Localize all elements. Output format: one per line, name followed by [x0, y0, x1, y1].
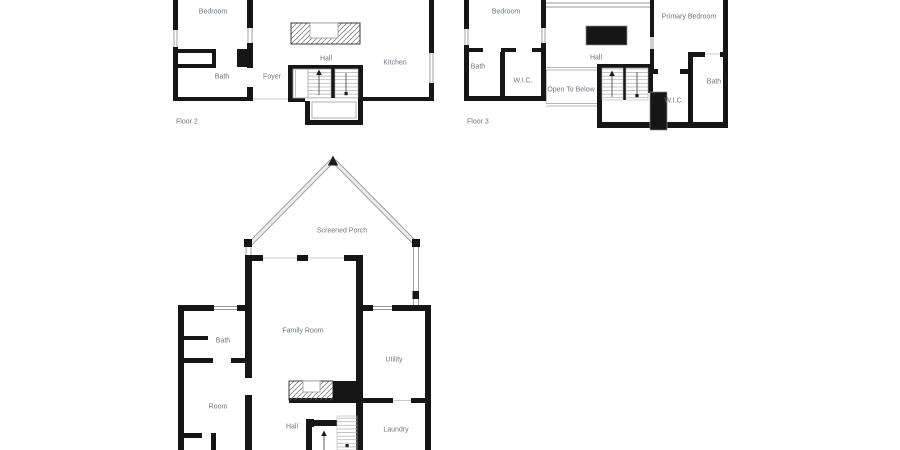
floor2-stairs — [293, 69, 358, 118]
porch-post-left — [244, 239, 252, 247]
room-label-f3-open-to-below: Open To Below — [547, 87, 595, 94]
room-label-f3-hall: Hall — [590, 55, 603, 62]
floor2-plan: Bedroom Bath Foyer Hall Kitchen Floor 2 — [173, 0, 434, 126]
room-label-f3-bath-right: Bath — [707, 79, 722, 86]
room-label-f2-hall: Hall — [320, 56, 333, 63]
room-label-f1-screened-porch: Screened Porch — [317, 228, 367, 235]
room-label-f1-laundry: Laundry — [383, 427, 409, 434]
room-label-f1-room: Room — [209, 404, 228, 411]
room-label-f3-bath-left: Bath — [471, 64, 486, 71]
floor1-fireplace — [289, 381, 363, 400]
room-label-f2-kitchen: Kitchen — [383, 60, 406, 67]
floor2-title: Floor 2 — [176, 119, 198, 126]
room-label-f1-family-room: Family Room — [282, 328, 323, 335]
floor1-plan: Screened Porch Family Room Bath Room Uti… — [178, 156, 431, 450]
floor1-stairs — [306, 416, 357, 450]
room-label-f3-wic-right: W.I.C. — [664, 98, 683, 105]
room-label-f2-foyer: Foyer — [263, 74, 282, 81]
porch-post-right — [412, 239, 420, 247]
floor1-walls — [178, 255, 431, 450]
room-label-f2-bedroom: Bedroom — [199, 9, 228, 16]
floor3-plan: Bedroom Bath W.I.C. Hall Open To Below P… — [464, 0, 728, 130]
room-label-f1-bath: Bath — [216, 338, 231, 345]
room-label-f1-utility: Utility — [385, 357, 403, 364]
room-label-f3-primary-bedroom: Primary Bedroom — [662, 14, 717, 21]
room-label-f3-bedroom: Bedroom — [492, 9, 521, 16]
room-label-f1-hall: Hall — [286, 424, 299, 431]
floorplan-canvas: Bedroom Bath Foyer Hall Kitchen Floor 2 — [0, 0, 900, 450]
room-label-f3-wic-left: W.I.C. — [513, 78, 532, 85]
floor2-fireplace — [291, 23, 360, 44]
room-label-f2-bath: Bath — [215, 74, 230, 81]
floor3-title: Floor 3 — [467, 119, 489, 126]
